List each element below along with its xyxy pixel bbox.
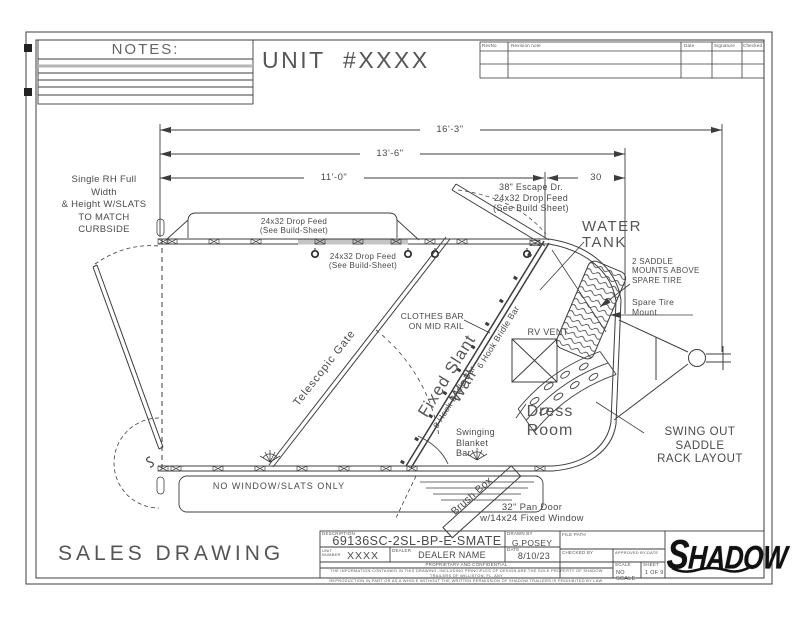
tb-checked-by-label: CHECKED BY — [562, 551, 612, 556]
unit-title: UNIT #XXXX — [262, 47, 482, 74]
fold-mark — [24, 44, 32, 52]
shadow-logo: SHADOW — [666, 531, 764, 580]
label-drop-feed-1: 24x32 Drop Feed (See Build-Sheet) — [248, 217, 340, 236]
rev-col-signature: Signature — [714, 44, 742, 49]
tb-sheet: 1 OF 9 — [645, 570, 667, 576]
tb-drawn-by-label: DRAWN BY — [507, 532, 551, 537]
label-water-tank: WATER TANK — [582, 219, 648, 251]
dim-dress: 30 — [578, 172, 614, 183]
spare-tire — [554, 259, 628, 361]
label-clothes-bar: CLOTHES BAR ON MID RAIL — [400, 311, 464, 331]
tb-unit-number-label: UNIT NUMBER — [322, 549, 346, 558]
fold-mark — [24, 88, 32, 96]
label-dress-room: Dress Room — [518, 403, 582, 441]
tb-legal: THE INFORMATION CONTAINED IN THIS DRAWIN… — [322, 569, 611, 584]
label-escape-door: 38" Escape Dr. 24x32 Drop Feed (See Buil… — [482, 182, 580, 214]
tb-proprietary: PROPRIETARY AND CONFIDENTIAL — [320, 563, 613, 568]
tb-scale: NO SCALE — [616, 570, 642, 583]
dim-stall: 11'-0" — [304, 172, 364, 183]
label-no-window: NO WINDOW/SLATS ONLY — [179, 481, 379, 492]
rev-col-date: Date — [684, 44, 709, 49]
label-saddle-mounts: 2 SADDLE MOUNTS ABOVE SPARE TIRE — [632, 257, 724, 285]
tb-description: 69136SC-2SL-BP-E-SMATE — [330, 534, 504, 549]
dim-body: 13'-6" — [360, 148, 420, 159]
tb-dealer: DEALER NAME — [402, 550, 502, 561]
rev-col-revno: RevNo — [482, 44, 507, 49]
rv-vent-symbol — [512, 339, 557, 382]
label-spare-tire: Spare Tire Mount — [632, 297, 692, 317]
hitch-tongue — [614, 320, 731, 420]
dim-overall: 16'-3" — [420, 124, 480, 135]
tb-unit-number: XXXX — [347, 550, 387, 562]
tb-approved-label: APPROVED BY-DATE — [615, 551, 665, 555]
sales-drawing-title: SALES DRAWING — [58, 542, 338, 567]
rev-col-note: Revision note — [511, 44, 601, 49]
gate-hinge — [260, 450, 280, 462]
label-saddle-rack: SWING OUT SADDLE RACK LAYOUT — [640, 426, 760, 467]
notes-title: NOTES: — [38, 41, 253, 59]
label-curbside-note: Single RH Full Width & Height W/SLATS TO… — [45, 174, 163, 237]
label-drop-feed-2: 24x32 Drop Feed (See Build-Sheet) — [317, 252, 409, 271]
label-pan-door: 32" Pan Door w/14x24 Fixed Window — [476, 502, 588, 524]
label-blanket-bar: Swinging Blanket Bar — [456, 427, 508, 459]
rev-col-checked: Checked — [743, 44, 765, 49]
label-rv-vent: RV VENT — [523, 327, 573, 338]
rear-door-open — [93, 219, 164, 508]
tb-sheet-label: SHEET — [643, 563, 665, 568]
drawing-sheet: NOTES: UNIT #XXXX RevNo Revision note Da… — [0, 0, 800, 618]
tb-date: 8/10/23 — [510, 551, 558, 562]
tb-scale-label: SCALE — [615, 563, 639, 568]
tb-file-path-label: FILE PATH — [562, 533, 606, 538]
